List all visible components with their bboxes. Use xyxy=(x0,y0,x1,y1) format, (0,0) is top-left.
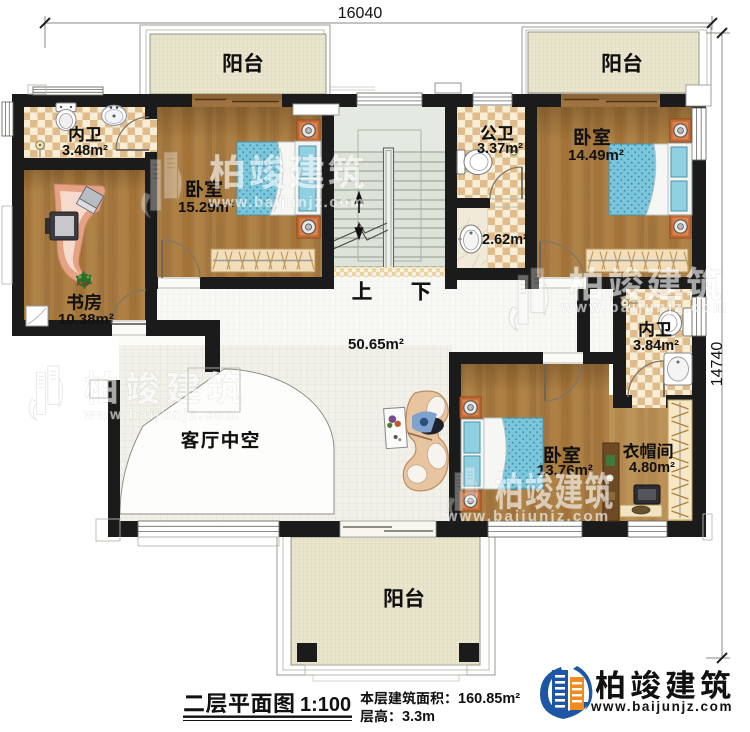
svg-text:10.38m²: 10.38m² xyxy=(58,311,114,328)
svg-text:3.37m²: 3.37m² xyxy=(477,141,523,157)
svg-text:www.baijunjz.com: www.baijunjz.com xyxy=(590,699,733,714)
svg-text:3.84m²: 3.84m² xyxy=(633,338,679,354)
svg-text:www.baijunjz.com: www.baijunjz.com xyxy=(445,508,611,525)
svg-text:3.3m: 3.3m xyxy=(402,709,435,725)
svg-text:14740: 14740 xyxy=(709,342,726,387)
svg-text:50.65m²: 50.65m² xyxy=(348,336,404,353)
svg-text:www.baijunjz.com: www.baijunjz.com xyxy=(560,299,729,316)
svg-text:www.baijunjz.com: www.baijunjz.com xyxy=(208,194,366,211)
svg-text:3.48m²: 3.48m² xyxy=(62,143,108,159)
svg-text:4.80m²: 4.80m² xyxy=(629,460,675,476)
svg-text:16040: 16040 xyxy=(338,5,383,22)
svg-text:14.49m²: 14.49m² xyxy=(568,147,624,164)
svg-text:160.85m²: 160.85m² xyxy=(458,691,520,707)
svg-text:2.62m²: 2.62m² xyxy=(482,232,528,248)
svg-text:1:100: 1:100 xyxy=(300,694,351,716)
svg-text:www.baijunjz.com: www.baijunjz.com xyxy=(83,406,240,422)
